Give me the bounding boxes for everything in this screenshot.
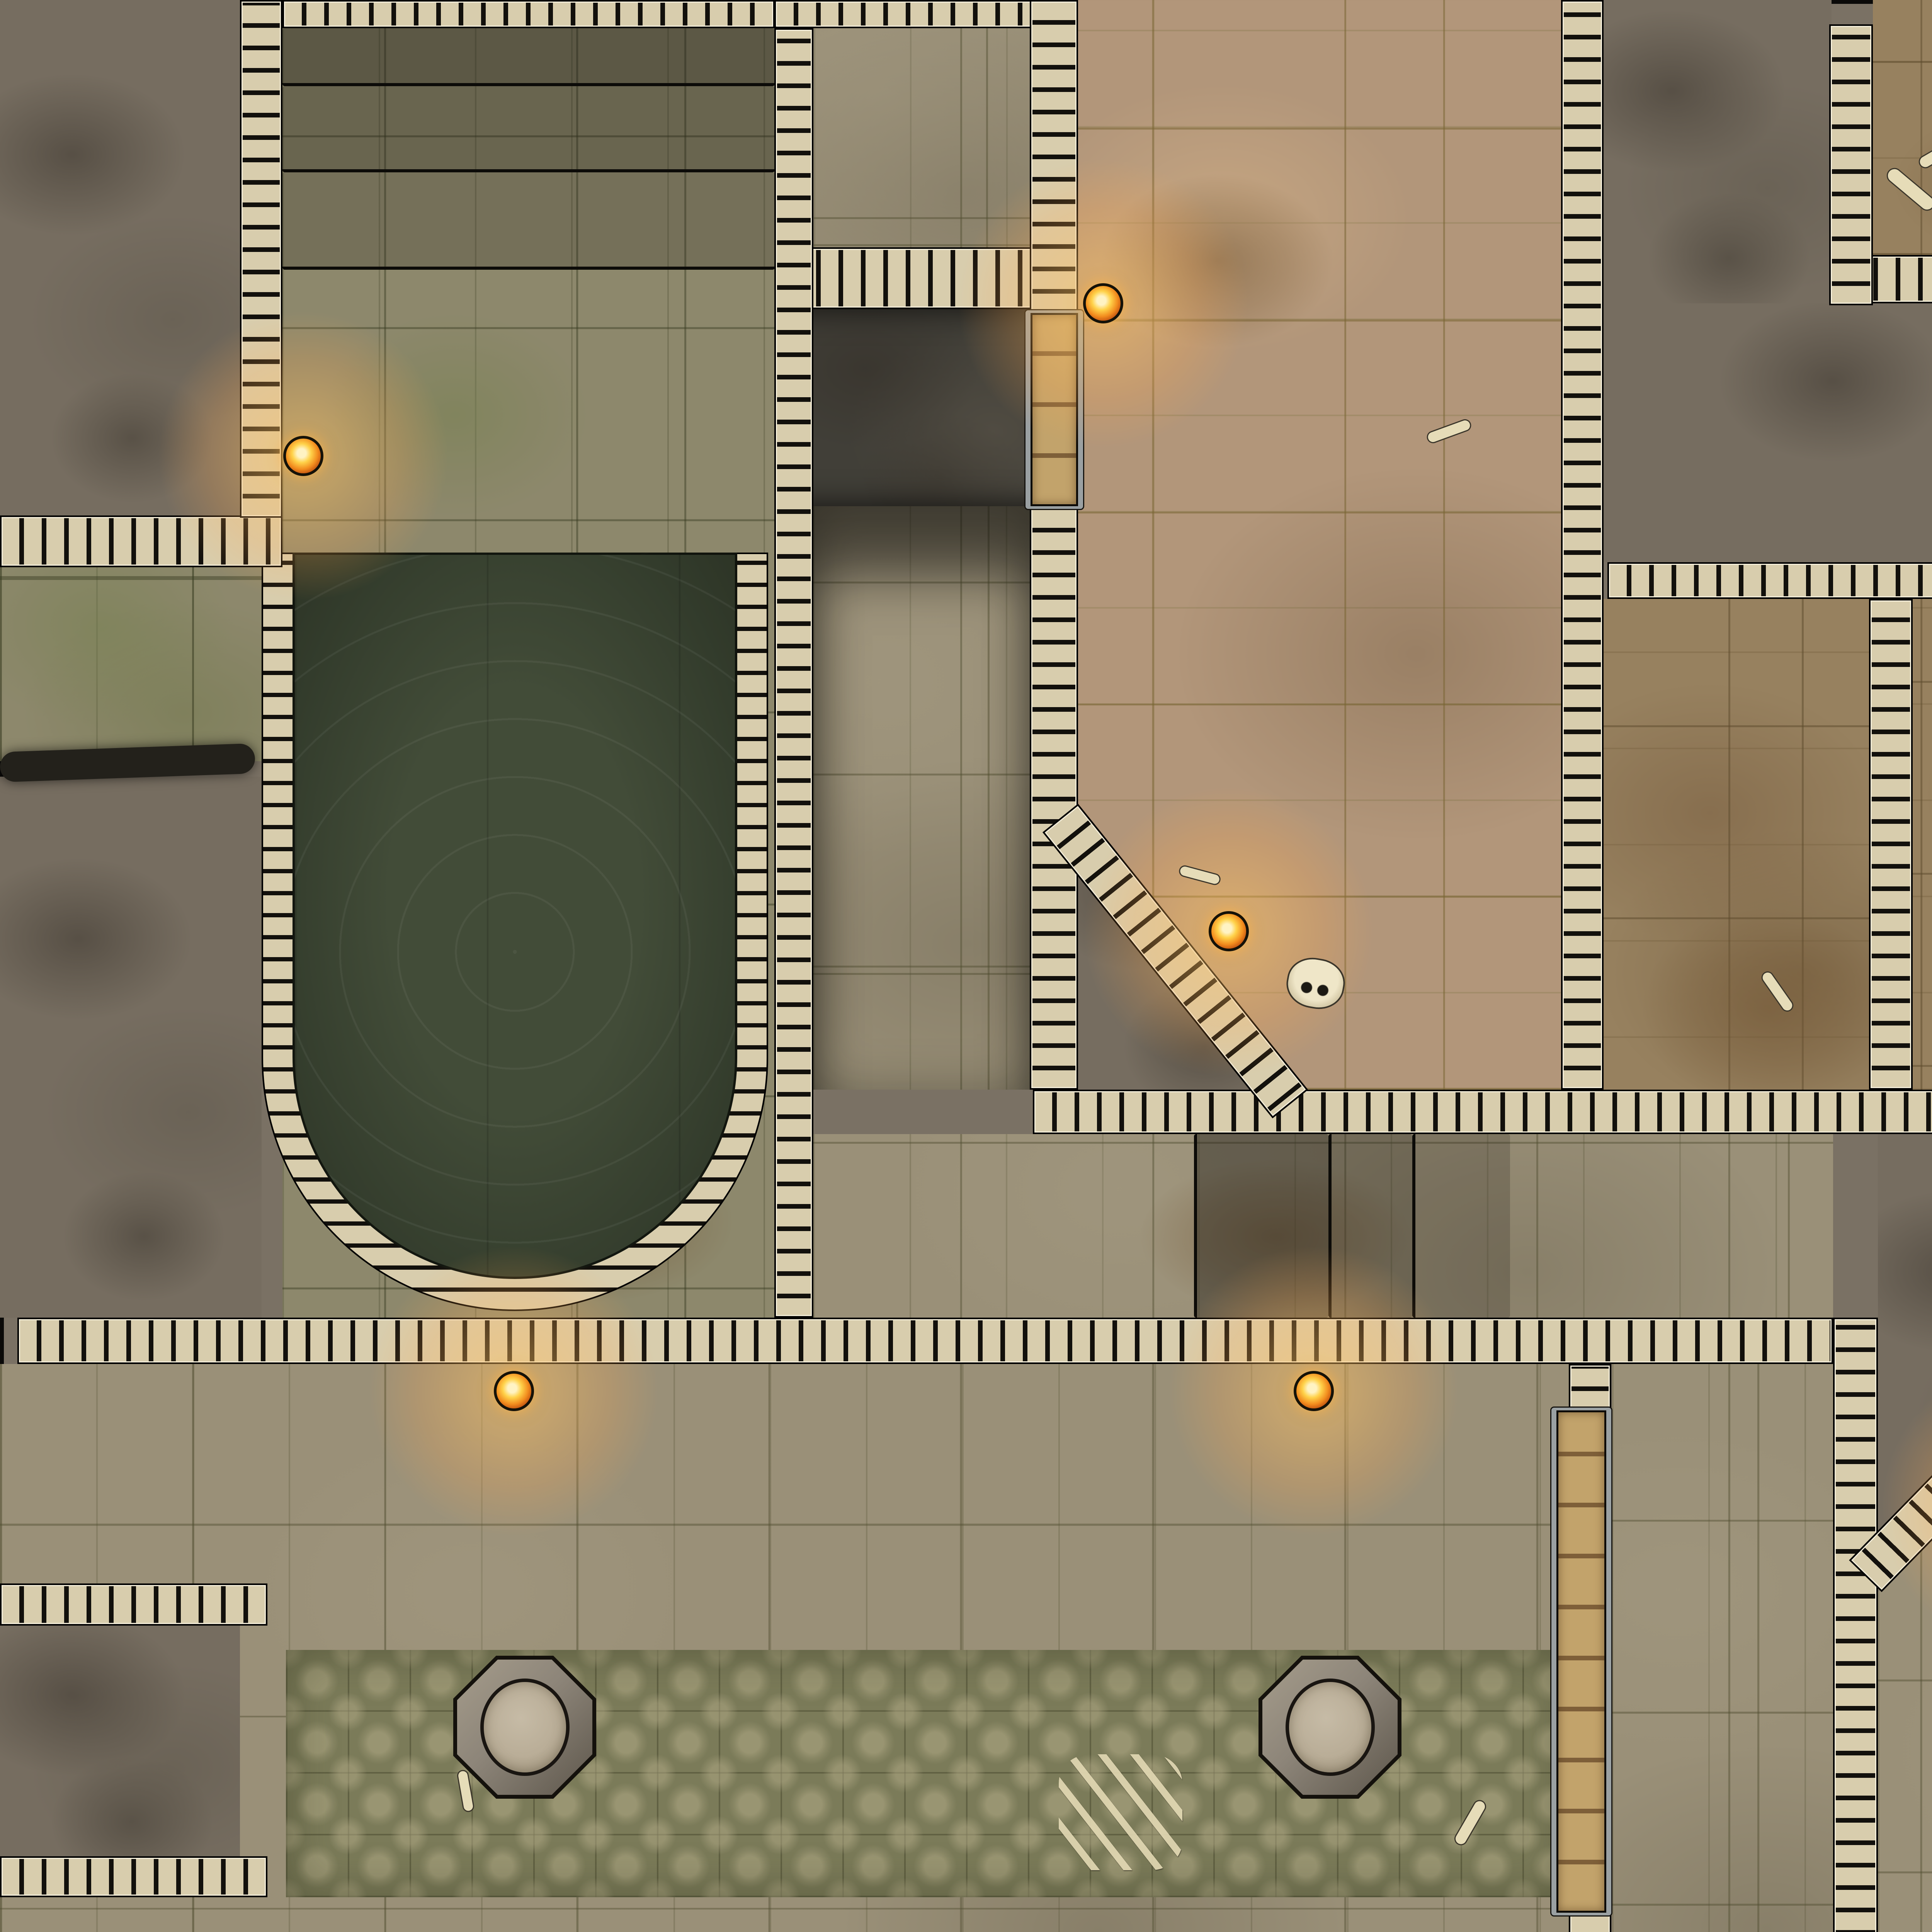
- rock-rock-block-north-b: [1604, 303, 1932, 562]
- rock-rock-top-left: [0, 0, 240, 515]
- wall-wall-north-hall-west-lower: [1030, 506, 1078, 1090]
- wall-wall-alcove-north: [774, 0, 1033, 28]
- pillar-top-octagonal-pillar-east: [1286, 1679, 1375, 1776]
- stair-step-steps-center-passage: [1412, 1134, 1510, 1318]
- wall-wall-north-hall-east: [1561, 0, 1604, 1090]
- wall-wall-mid-rooms-north: [1607, 562, 1932, 599]
- torch-flame-icon: [283, 436, 323, 476]
- wall-wall-north-hall-west-upper: [1030, 0, 1078, 313]
- stair-step-steps-center-passage: [1328, 1134, 1412, 1318]
- wall-wall-topleft-pocket-east: [240, 0, 282, 518]
- torch-flame-icon: [1209, 911, 1249, 951]
- rock-rock-west-ledge-lower: [0, 777, 262, 1318]
- plank-bridge-west: [1031, 313, 1078, 506]
- rock-rock-block-north-a: [1604, 0, 1832, 303]
- stair-step-grand-stairs-north: [282, 172, 775, 270]
- dirt-patch: [1101, 174, 1333, 348]
- torch-flame-icon: [1294, 1371, 1334, 1411]
- stair-step-grand-stairs-north: [282, 86, 775, 172]
- floor-alcove-room-floor: [814, 28, 1032, 247]
- pool-water: [293, 553, 737, 1279]
- wall-wall-stair-room-north: [282, 0, 775, 28]
- stair-step-grand-stairs-north: [282, 28, 775, 86]
- skeleton-leg-bones: [1059, 1754, 1182, 1870]
- floor-mid-dirt-room-east-floor: [1913, 599, 1932, 1090]
- wall-wall-recess-north: [0, 1583, 267, 1626]
- torch-flame-icon: [1083, 283, 1123, 323]
- wall-wall-mid-rooms-divider: [1869, 599, 1913, 1090]
- plank-wall-center: [1556, 1410, 1606, 1913]
- wall-wall-pool-room-east: [774, 28, 813, 1318]
- stair-step-steps-center-passage: [1194, 1134, 1328, 1318]
- floor-bottom-center-east-room-floor: [1612, 1364, 1833, 1932]
- floor-pool-west-ledge-floor: [0, 567, 282, 761]
- wall-wall-recess-south: [0, 1856, 267, 1897]
- wall-wall-hall-east-upper: [1569, 1364, 1611, 1410]
- wall-wall-topleft-pocket-south: [0, 515, 282, 567]
- torch-flame-icon: [494, 1371, 534, 1411]
- floor-pocket-room-floor: [813, 506, 1033, 1090]
- wall-wall-great-hall-north: [17, 1318, 1833, 1364]
- dirt-patch: [1642, 908, 1893, 1109]
- wall-wall-rock-a-east: [1829, 24, 1873, 305]
- pillar-top-octagonal-pillar-west: [480, 1679, 570, 1776]
- rock-rock-recess-west: [0, 1626, 240, 1856]
- wall-wall-north-hall-south: [1033, 1090, 1932, 1134]
- wall-wall-se-hall-west: [1833, 1318, 1878, 1932]
- dungeon-map: [0, 0, 1932, 1932]
